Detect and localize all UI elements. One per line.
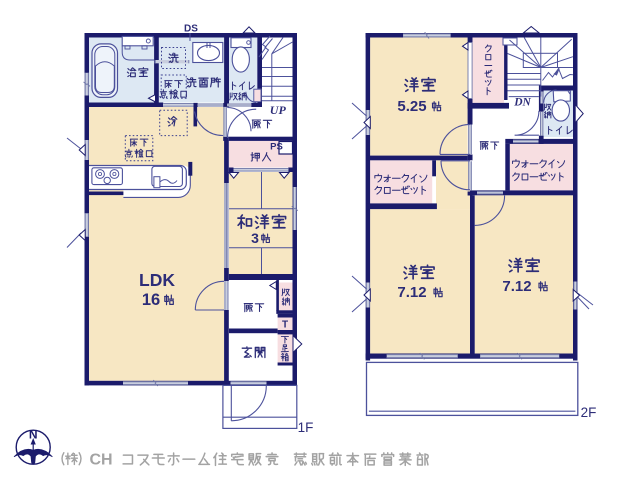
svg-text:1F: 1F	[298, 420, 314, 435]
svg-text:CH: CH	[89, 452, 112, 469]
svg-text:T: T	[282, 320, 288, 331]
svg-text:DS: DS	[184, 24, 198, 35]
svg-text:PS: PS	[270, 142, 283, 153]
svg-text:DN: DN	[513, 97, 531, 109]
svg-text:16: 16	[142, 291, 160, 309]
svg-text:7.12: 7.12	[502, 278, 531, 295]
svg-text:7.12: 7.12	[397, 284, 426, 301]
svg-text:UP: UP	[270, 103, 287, 117]
svg-text:LDK: LDK	[139, 270, 175, 290]
svg-text:3: 3	[251, 230, 259, 246]
svg-text:5.25: 5.25	[397, 98, 426, 115]
svg-text:2F: 2F	[581, 405, 597, 420]
